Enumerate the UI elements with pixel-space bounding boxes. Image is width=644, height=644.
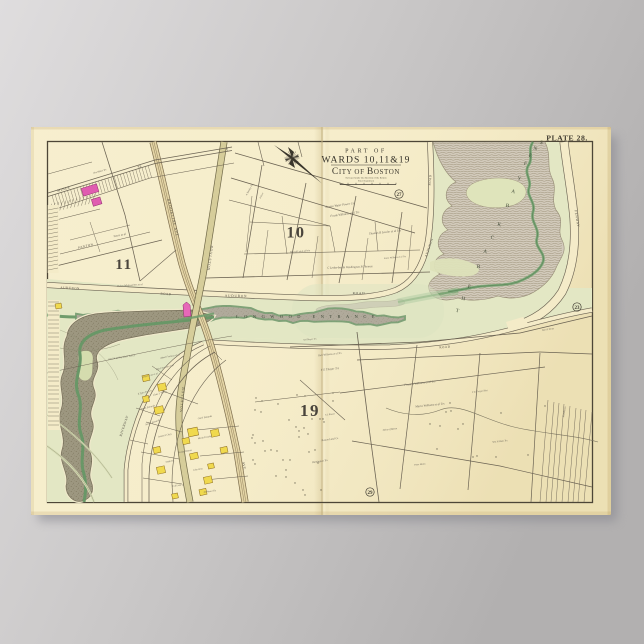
- svg-text:ROAD: ROAD: [353, 291, 366, 295]
- svg-text:AUDUBON: AUDUBON: [225, 294, 248, 298]
- svg-text:11: 11: [115, 257, 132, 273]
- svg-text:19: 19: [300, 401, 320, 420]
- svg-text:WARDS 10,11&19: WARDS 10,11&19: [322, 155, 411, 166]
- svg-text:10: 10: [287, 225, 306, 242]
- svg-text:ROAD: ROAD: [160, 292, 171, 296]
- svg-text:Surveyed under the direction o: Surveyed under the direction of the Bost…: [345, 177, 387, 180]
- svg-text:23: 23: [575, 306, 581, 311]
- svg-text:PLATE 28.: PLATE 28.: [546, 134, 588, 143]
- svg-text:27: 27: [397, 193, 403, 198]
- svg-text:LONGWOOD ENTRANCE: LONGWOOD ENTRANCE: [236, 314, 380, 319]
- svg-text:Street Department: Street Department: [358, 180, 374, 182]
- svg-text:CITY OF BOSTON: CITY OF BOSTON: [332, 167, 400, 177]
- svg-text:ROAD: ROAD: [428, 174, 433, 185]
- svg-text:29: 29: [368, 491, 374, 496]
